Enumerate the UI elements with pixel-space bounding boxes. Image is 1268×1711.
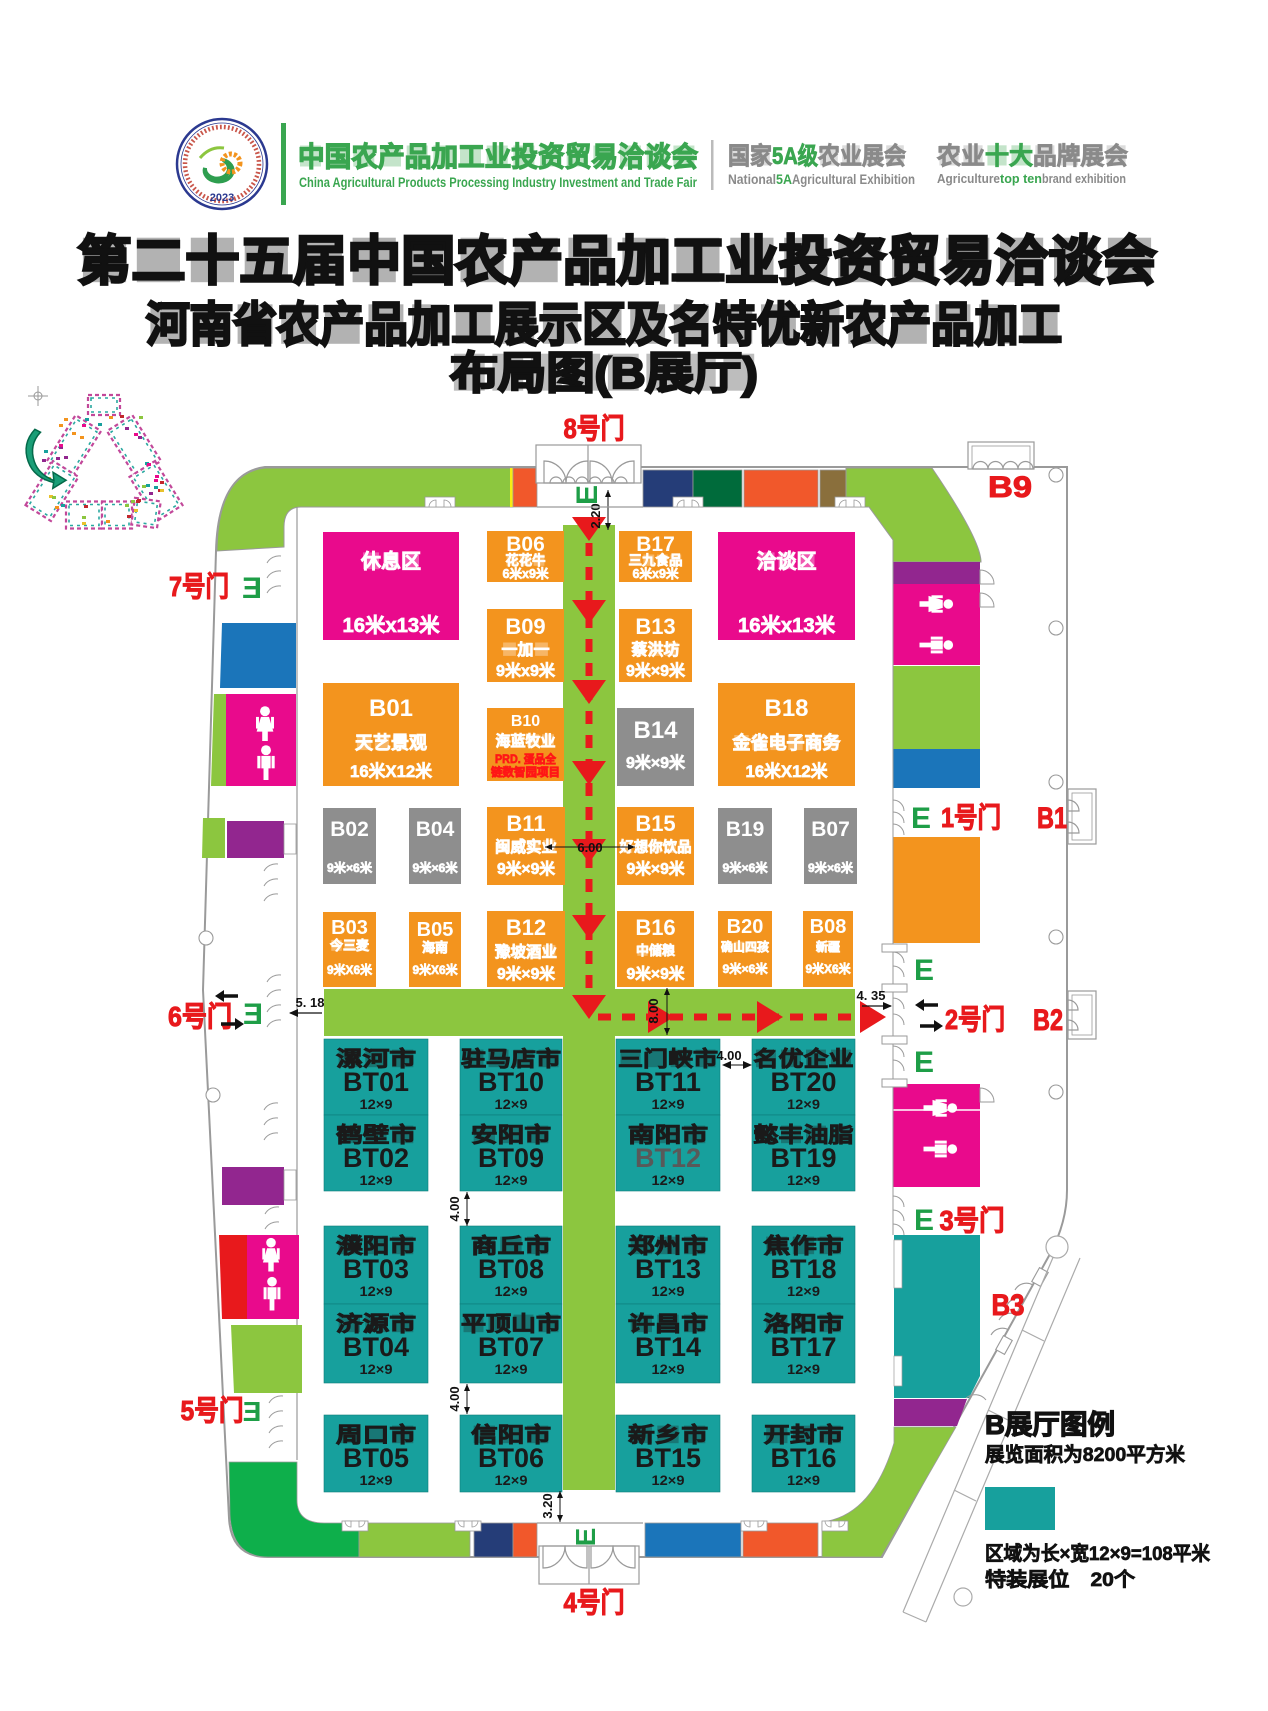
svg-text:BT16: BT16 <box>771 1443 837 1473</box>
svg-text:展览面积为8200平方米: 展览面积为8200平方米 <box>985 1443 1185 1466</box>
svg-text:5号门: 5号门 <box>181 1395 244 1426</box>
svg-text:农业展会: 农业展会 <box>817 142 906 170</box>
svg-text:9米×9米: 9米×9米 <box>626 753 686 772</box>
svg-text:12×9: 12×9 <box>787 1096 820 1112</box>
svg-text:B15: B15 <box>635 811 675 836</box>
svg-text:BT12: BT12 <box>635 1143 701 1173</box>
svg-text:8.00: 8.00 <box>646 998 661 1023</box>
svg-text:9米×6米: 9米×6米 <box>327 860 373 875</box>
svg-text:三九食品: 三九食品 <box>629 552 683 568</box>
svg-text:B9: B9 <box>988 471 1032 504</box>
svg-text:BT17: BT17 <box>771 1332 837 1362</box>
svg-text:B10: B10 <box>511 713 540 730</box>
svg-text:BT03: BT03 <box>343 1254 409 1284</box>
svg-text:9米x9米: 9米x9米 <box>496 661 556 680</box>
svg-text:B2: B2 <box>1033 1004 1063 1037</box>
svg-text:9米×9米: 9米×9米 <box>627 859 686 878</box>
svg-text:16米x13米: 16米x13米 <box>738 614 836 637</box>
svg-text:花花牛: 花花牛 <box>506 552 546 568</box>
svg-text:B02: B02 <box>330 818 369 841</box>
svg-text:E: E <box>911 802 931 835</box>
svg-text:E: E <box>914 1204 934 1237</box>
svg-text:天艺景观: 天艺景观 <box>355 732 427 753</box>
svg-text:品牌展会: 品牌展会 <box>1033 142 1128 170</box>
svg-text:9米×9米: 9米×9米 <box>627 964 686 983</box>
svg-text:12×9: 12×9 <box>495 1472 528 1488</box>
svg-text:BT04: BT04 <box>343 1332 409 1362</box>
svg-text:BT06: BT06 <box>478 1443 544 1473</box>
svg-text:BT07: BT07 <box>478 1332 544 1362</box>
svg-text:B09: B09 <box>505 614 545 639</box>
svg-text:海南: 海南 <box>422 940 448 955</box>
svg-text:Agriculture: Agriculture <box>937 172 1000 186</box>
svg-text:B14: B14 <box>633 717 678 744</box>
svg-text:7号门: 7号门 <box>169 571 229 602</box>
svg-text:BT15: BT15 <box>635 1443 701 1473</box>
svg-text:E: E <box>243 1396 262 1427</box>
svg-text:B05: B05 <box>417 919 454 941</box>
svg-text:PRD. 蛋品全: PRD. 蛋品全 <box>495 752 556 766</box>
svg-text:B展厅图例: B展厅图例 <box>985 1410 1115 1440</box>
svg-text:BT08: BT08 <box>478 1254 544 1284</box>
svg-text:海蓝牧业: 海蓝牧业 <box>496 732 556 750</box>
svg-text:5A: 5A <box>776 171 792 187</box>
svg-text:E: E <box>243 998 263 1031</box>
svg-text:6米x9米: 6米x9米 <box>503 566 549 581</box>
svg-text:12×9: 12×9 <box>652 1361 685 1377</box>
svg-text:河南省农产品加工展示区及名特优新农产品加工: 河南省农产品加工展示区及名特优新农产品加工 <box>146 298 1062 351</box>
svg-text:布局图(B展厅): 布局图(B展厅) <box>450 349 758 398</box>
svg-text:6米x9米: 6米x9米 <box>633 566 679 581</box>
svg-text:3号门: 3号门 <box>940 1205 1005 1236</box>
svg-text:确山四孩: 确山四孩 <box>721 939 769 954</box>
svg-text:12×9: 12×9 <box>787 1283 820 1299</box>
svg-text:4.00: 4.00 <box>716 1048 741 1063</box>
svg-text:B20: B20 <box>727 916 764 938</box>
svg-text:12×9: 12×9 <box>495 1096 528 1112</box>
svg-text:9米×9米: 9米×9米 <box>497 964 556 983</box>
svg-text:第二十五届中国农产品加工业投资贸易洽谈会: 第二十五届中国农产品加工业投资贸易洽谈会 <box>78 232 1157 291</box>
svg-text:BT13: BT13 <box>635 1254 701 1284</box>
svg-text:B1: B1 <box>1037 802 1067 835</box>
svg-text:BT09: BT09 <box>478 1143 544 1173</box>
svg-text:12×9: 12×9 <box>652 1472 685 1488</box>
svg-text:Agricultural Exhibition: Agricultural Exhibition <box>792 171 915 187</box>
svg-text:12×9: 12×9 <box>787 1361 820 1377</box>
svg-text:休息区: 休息区 <box>360 549 421 573</box>
svg-text:9米×9米: 9米×9米 <box>497 859 556 878</box>
svg-text:BT10: BT10 <box>478 1067 544 1097</box>
svg-text:9米X6米: 9米X6米 <box>806 961 852 976</box>
svg-text:BT11: BT11 <box>635 1067 701 1097</box>
svg-text:16米X12米: 16米X12米 <box>746 761 829 781</box>
svg-text:top ten: top ten <box>1000 172 1042 186</box>
svg-text:12×9: 12×9 <box>360 1472 393 1488</box>
svg-text:B18: B18 <box>764 695 808 722</box>
svg-text:一加一: 一加一 <box>502 641 550 659</box>
svg-text:BT01: BT01 <box>343 1067 409 1097</box>
svg-text:12×9: 12×9 <box>495 1283 528 1299</box>
svg-text:2023: 2023 <box>210 192 234 204</box>
svg-text:BT05: BT05 <box>343 1443 409 1473</box>
svg-text:China Agricultural Products Pr: China Agricultural Products Processing I… <box>299 175 698 190</box>
svg-text:今三麦: 今三麦 <box>329 938 370 953</box>
svg-text:12×9: 12×9 <box>360 1172 393 1188</box>
svg-text:B3: B3 <box>992 1289 1025 1322</box>
svg-text:蔡洪坊: 蔡洪坊 <box>631 640 680 659</box>
svg-text:中储粮: 中储粮 <box>636 943 676 958</box>
svg-text:12×9: 12×9 <box>495 1361 528 1377</box>
svg-text:9米X6米: 9米X6米 <box>327 962 373 977</box>
svg-text:B13: B13 <box>635 614 675 639</box>
svg-text:农业: 农业 <box>936 143 985 170</box>
svg-text:BT02: BT02 <box>343 1143 409 1173</box>
svg-text:9米×6米: 9米×6米 <box>723 860 769 875</box>
svg-text:B16: B16 <box>635 915 675 940</box>
svg-text:12×9: 12×9 <box>787 1472 820 1488</box>
svg-text:16米X12米: 16米X12米 <box>350 761 433 781</box>
svg-text:9米×6米: 9米×6米 <box>413 860 459 875</box>
svg-text:中国农产品加工业投资贸易洽谈会: 中国农产品加工业投资贸易洽谈会 <box>298 141 698 172</box>
svg-text:6号门: 6号门 <box>168 1001 232 1032</box>
svg-text:BT18: BT18 <box>771 1254 837 1284</box>
svg-text:9米×9米: 9米×9米 <box>626 661 686 680</box>
svg-text:National: National <box>728 171 776 187</box>
svg-text:4.00: 4.00 <box>447 1196 462 1221</box>
svg-text:12×9: 12×9 <box>360 1096 393 1112</box>
svg-text:E: E <box>570 1528 601 1547</box>
svg-text:4.00: 4.00 <box>447 1386 462 1411</box>
svg-text:6.00: 6.00 <box>577 840 602 855</box>
svg-text:12×9: 12×9 <box>652 1172 685 1188</box>
svg-text:B04: B04 <box>416 818 455 841</box>
svg-text:链数智园项目: 链数智园项目 <box>491 765 560 779</box>
svg-text:12×9: 12×9 <box>652 1283 685 1299</box>
svg-text:豫坡酒业: 豫坡酒业 <box>495 942 557 961</box>
svg-text:1号门: 1号门 <box>941 802 1001 833</box>
svg-text:9米×6米: 9米×6米 <box>808 860 854 875</box>
svg-text:B01: B01 <box>369 695 413 722</box>
svg-text:B07: B07 <box>811 818 850 841</box>
svg-text:B03: B03 <box>331 917 368 939</box>
svg-text:十大: 十大 <box>985 143 1033 170</box>
svg-text:E: E <box>242 572 262 605</box>
svg-text:12×9: 12×9 <box>495 1172 528 1188</box>
svg-text:E: E <box>914 1046 934 1079</box>
svg-text:12×9: 12×9 <box>787 1172 820 1188</box>
svg-text:16米x13米: 16米x13米 <box>343 614 441 637</box>
svg-text:5. 18: 5. 18 <box>296 995 325 1010</box>
svg-text:12×9: 12×9 <box>360 1283 393 1299</box>
svg-text:5A级: 5A级 <box>772 142 818 170</box>
svg-text:E: E <box>571 485 604 505</box>
svg-text:金雀电子商务: 金雀电子商务 <box>732 732 842 753</box>
svg-text:E: E <box>914 954 934 987</box>
svg-text:12×9: 12×9 <box>652 1096 685 1112</box>
svg-text:B11: B11 <box>506 811 545 836</box>
svg-text:B12: B12 <box>506 915 546 940</box>
svg-text:BT20: BT20 <box>771 1067 837 1097</box>
svg-text:BT14: BT14 <box>635 1332 701 1362</box>
svg-text:12×9: 12×9 <box>360 1361 393 1377</box>
svg-text:洽谈区: 洽谈区 <box>757 549 817 573</box>
svg-text:9米×6米: 9米×6米 <box>723 961 769 976</box>
svg-text:特装展位 20个: 特装展位 20个 <box>985 1568 1136 1591</box>
svg-text:4号门: 4号门 <box>564 1587 625 1618</box>
svg-text:brand exhibition: brand exhibition <box>1042 172 1126 186</box>
svg-text:B08: B08 <box>810 916 847 938</box>
svg-text:BT19: BT19 <box>771 1143 837 1173</box>
svg-text:新疆: 新疆 <box>816 939 840 954</box>
svg-text:区域为长×宽12×9=108平米: 区域为长×宽12×9=108平米 <box>985 1542 1210 1565</box>
svg-text:B19: B19 <box>726 818 765 841</box>
svg-text:4. 35: 4. 35 <box>857 988 886 1003</box>
svg-text:国家: 国家 <box>728 142 772 170</box>
svg-text:9米X6米: 9米X6米 <box>413 962 459 977</box>
svg-text:3.20: 3.20 <box>540 1493 555 1518</box>
svg-text:8号门: 8号门 <box>564 413 625 444</box>
svg-text:2号门: 2号门 <box>945 1004 1005 1035</box>
